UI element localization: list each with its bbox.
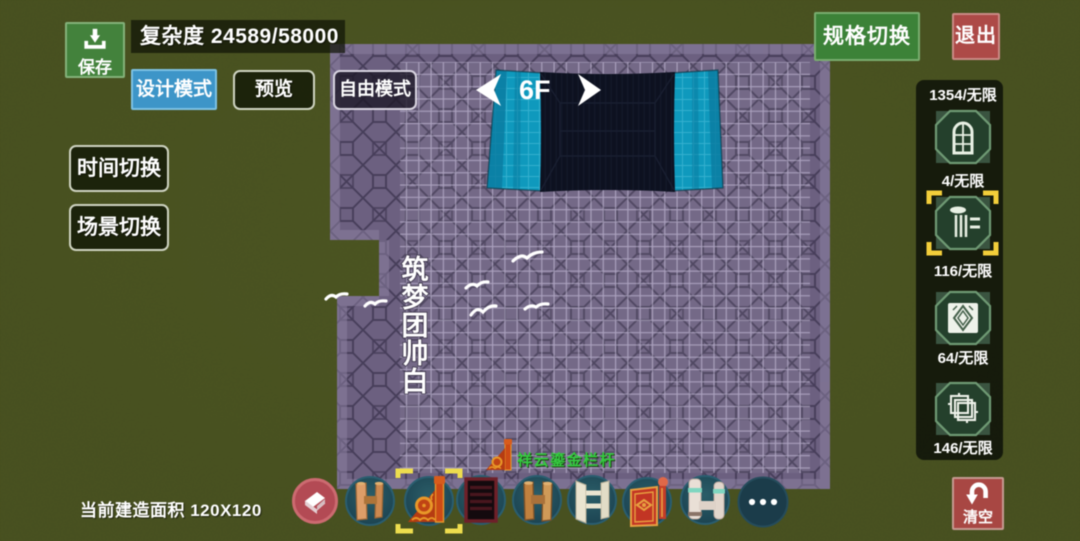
svg-text:白: 白: [402, 366, 429, 397]
svg-text:团: 团: [402, 311, 429, 341]
svg-text:64/无限: 64/无限: [938, 350, 989, 367]
svg-text:146/无限: 146/无限: [933, 440, 992, 457]
svg-text:筑: 筑: [402, 254, 429, 285]
svg-text:4/无限: 4/无限: [942, 173, 985, 190]
svg-text:1354/无限: 1354/无限: [929, 87, 997, 104]
svg-text:6F: 6F: [519, 75, 551, 105]
svg-text:帅: 帅: [402, 339, 429, 369]
svg-text:116/无限: 116/无限: [934, 263, 992, 280]
svg-text:梦: 梦: [402, 283, 429, 313]
